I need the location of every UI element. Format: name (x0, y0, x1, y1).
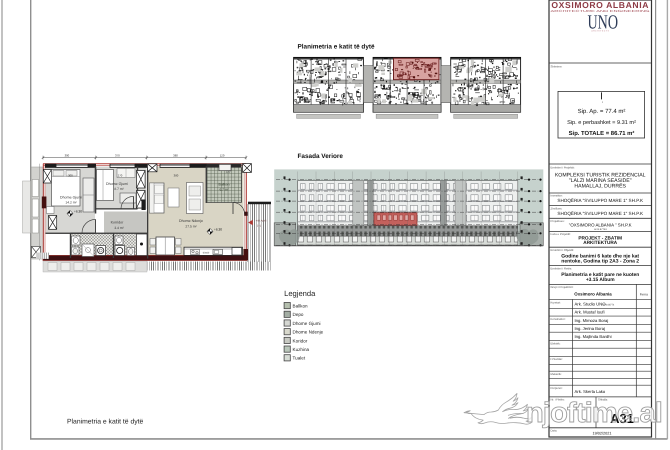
svg-text:Investitor:: Investitor: (551, 194, 563, 198)
svg-text:SHOQËRIA "SVILUPPO MARE 1" SH.: SHOQËRIA "SVILUPPO MARE 1" SH.P.K (557, 211, 644, 216)
svg-text:+3.15 Album: +3.15 Album (586, 277, 615, 283)
svg-text:Ballkon: Ballkon (293, 304, 309, 309)
svg-text:Fasada Veriore: Fasada Veriore (298, 153, 344, 160)
svg-text:Ing. Mimoza Boraj: Ing. Mimoza Boraj (575, 318, 609, 323)
svg-text:Dhome Gjumi: Dhome Gjumi (60, 195, 82, 199)
svg-text:19/02/2021: 19/02/2021 (592, 431, 611, 435)
svg-text:60x60: 60x60 (203, 252, 210, 255)
svg-text:ARKITEKTURA: ARKITEKTURA (583, 240, 617, 245)
svg-text:270: 270 (118, 174, 123, 178)
svg-text:Dhome Ndenje: Dhome Ndenje (179, 219, 203, 223)
svg-text:njoftime.al: njoftime.al (526, 397, 662, 428)
svg-text:2+1: 2+1 (257, 225, 262, 228)
svg-text:Data:: Data: (551, 429, 558, 433)
svg-text:Lic.N.67753: Lic.N.67753 (594, 228, 607, 231)
svg-text:Planimetria e katit të dytë: Planimetria e katit të dytë (67, 419, 144, 426)
svg-text:Ark. Mustaf Isufi: Ark. Mustaf Isufi (575, 310, 605, 315)
svg-text:Elektrik:: Elektrik: (551, 341, 561, 345)
svg-text:Ing. Majlinda Bardhi: Ing. Majlinda Bardhi (575, 334, 612, 339)
svg-text:"OXSIMORO ALBANIA " SH.P.K: "OXSIMORO ALBANIA " SH.P.K (569, 222, 632, 227)
svg-text:Projektues:: Projektues: (551, 219, 565, 223)
svg-text:27.5 m²: 27.5 m² (185, 224, 197, 228)
svg-text:Oxsimoro Albania: Oxsimoro Albania (574, 291, 612, 296)
svg-text:Planimetria e katit të dytë: Planimetria e katit të dytë (298, 44, 376, 51)
svg-text:SHOQËRIA "SVILUPPO MARE 1" SH.: SHOQËRIA "SVILUPPO MARE 1" SH.P.K (557, 198, 644, 203)
svg-text:14.2 m²: 14.2 m² (65, 201, 77, 205)
svg-text:Firma: Firma (640, 292, 648, 296)
svg-text:Korridor: Korridor (111, 221, 125, 225)
svg-text:Dhome Gjumi: Dhome Gjumi (293, 321, 321, 326)
svg-text:380: 380 (173, 154, 178, 158)
svg-text:120: 120 (220, 154, 225, 158)
svg-text:H.Sanitar:: H.Sanitar: (551, 357, 564, 361)
svg-text:Legjenda: Legjenda (284, 289, 316, 298)
svg-text:+40 Aprili: +40 Aprili (256, 220, 267, 223)
svg-text:Tualet: Tualet (293, 356, 306, 361)
svg-text:300: 300 (68, 174, 73, 178)
svg-text:Ark. Skerla Lako: Ark. Skerla Lako (575, 389, 606, 394)
svg-text:+6.30: +6.30 (214, 228, 222, 232)
svg-text:Planimetria e katit pare ne ku: Planimetria e katit pare ne kuoten (561, 272, 639, 278)
svg-text:Lic.N.68774: Lic.N.68774 (602, 304, 615, 307)
svg-text:Sip. e perbashket = 9.31 m²: Sip. e perbashket = 9.31 m² (567, 119, 636, 126)
svg-text:370: 370 (115, 154, 120, 158)
svg-text:HAMALLAJ, DURRËS: HAMALLAJ, DURRËS (574, 183, 626, 190)
svg-text:300: 300 (65, 154, 70, 158)
svg-text:A R C H I T E C T S: A R C H I T E C T S (591, 30, 609, 33)
svg-text:3.4 m²: 3.4 m² (114, 226, 124, 230)
svg-text:Emërtimi i Objektit:: Emërtimi i Objektit: (551, 248, 575, 252)
svg-text:Ing. Jerina Boraj: Ing. Jerina Boraj (575, 326, 606, 331)
svg-text:Mekanik:: Mekanik: (551, 372, 562, 376)
svg-text:Dhome Gjumi: Dhome Gjumi (106, 182, 128, 186)
svg-text:Faza e Projektit:: Faza e Projektit: (551, 232, 571, 236)
svg-text:+6.30: +6.30 (74, 210, 82, 214)
svg-text:Përpunoi:: Përpunoi: (551, 386, 563, 390)
svg-text:Ballkon: Ballkon (218, 183, 229, 187)
svg-text:Kryetari:: Kryetari: (551, 300, 562, 304)
svg-text:Emërtimi i Fletës:: Emërtimi i Fletës: (551, 266, 573, 270)
svg-text:Zhvillues:: Zhvillues: (551, 206, 563, 210)
svg-text:Grupi i Projektimit:: Grupi i Projektimit: (551, 285, 574, 289)
svg-text:8.7 m²: 8.7 m² (114, 187, 124, 191)
svg-text:Sip. Ap. = 77.4 m²: Sip. Ap. = 77.4 m² (578, 108, 626, 115)
svg-text:380: 380 (174, 174, 179, 178)
svg-text:nentoke, Godina tip 2A3 - Zona: nentoke, Godina tip 2A3 - Zona 2 (561, 258, 639, 264)
svg-text:Kuzhina: Kuzhina (293, 347, 310, 352)
svg-text:Shënime:: Shënime: (551, 64, 563, 68)
svg-text:Koridor: Koridor (293, 338, 308, 343)
svg-text:6.7 m²: 6.7 m² (219, 188, 228, 192)
svg-text:Dhome Ndenje: Dhome Ndenje (293, 330, 324, 335)
svg-text:Konstruktor:: Konstruktor: (551, 317, 566, 321)
svg-text:Depo: Depo (293, 312, 304, 317)
svg-text:Sip. TOTALE = 86.71 m²: Sip. TOTALE = 86.71 m² (569, 130, 635, 137)
svg-text:Emërtimi i Projektit:: Emërtimi i Projektit: (551, 166, 575, 170)
svg-text:120: 120 (226, 170, 231, 174)
